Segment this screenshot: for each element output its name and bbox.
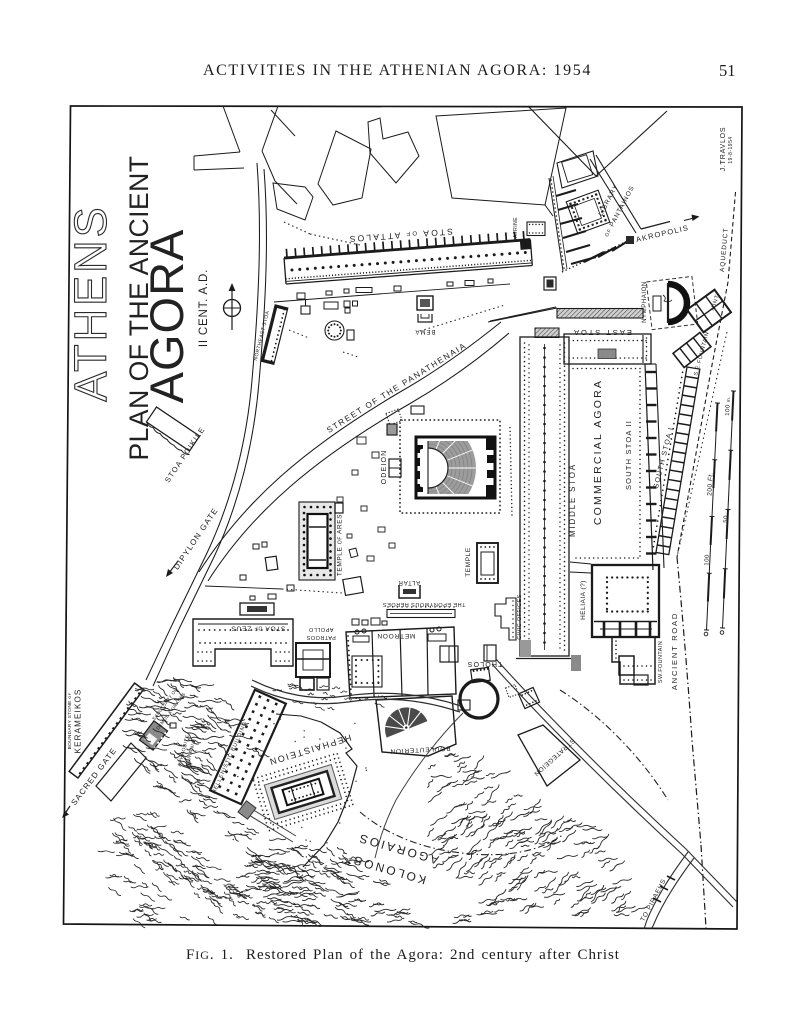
svg-text:APOLLO: APOLLO <box>308 626 333 632</box>
svg-text:II CENT. A.D.: II CENT. A.D. <box>198 269 210 347</box>
svg-text:100: 100 <box>704 554 711 566</box>
svg-text:AGORA: AGORA <box>140 229 193 404</box>
svg-text:AKROPOLIS: AKROPOLIS <box>635 223 690 244</box>
svg-text:EAST STOA: EAST STOA <box>572 328 632 337</box>
svg-text:COMMERCIAL AGORA: COMMERCIAL AGORA <box>592 379 604 525</box>
svg-text:THE EPONYMOUS HEROES: THE EPONYMOUS HEROES <box>382 601 465 607</box>
svg-text:STREET OF THE PANATHENAIA: STREET OF THE PANATHENAIA <box>325 341 468 435</box>
svg-text:DIPYLON GATE: DIPYLON GATE <box>172 506 220 572</box>
svg-text:BOUNDARY STONE OF: BOUNDARY STONE OF <box>67 692 73 749</box>
svg-text:J.TRAVLOS: J.TRAVLOS <box>720 127 727 172</box>
svg-text:STOA POIKILE: STOA POIKILE <box>163 425 207 484</box>
svg-text:KERAMEIKOS: KERAMEIKOS <box>74 689 83 754</box>
svg-text:CIVIC OFFICES: CIVIC OFFICES <box>517 594 523 639</box>
svg-text:TEMPLE OF ARES: TEMPLE OF ARES <box>337 514 344 576</box>
svg-text:ODEION: ODEION <box>381 450 388 485</box>
svg-text:BEMA: BEMA <box>414 328 435 334</box>
svg-text:SW.FOUNTAIN: SW.FOUNTAIN <box>658 641 664 683</box>
svg-text:ALTAR: ALTAR <box>398 579 420 585</box>
svg-text:200 Ft.: 200 Ft. <box>706 472 714 496</box>
svg-text:TO PIRAEUS: TO PIRAEUS <box>639 878 667 923</box>
svg-text:AQUEDUCT: AQUEDUCT <box>719 227 730 272</box>
svg-text:STOA OF ZEUS: STOA OF ZEUS <box>231 625 286 632</box>
svg-text:METROON: METROON <box>377 632 416 639</box>
svg-text:PATROOS: PATROOS <box>306 634 336 640</box>
svg-text:STRATEGEION: STRATEGEION <box>532 737 576 777</box>
svg-text:MIDDLE STOA: MIDDLE STOA <box>568 463 577 537</box>
svg-text:HELIAIA (?): HELIAIA (?) <box>580 580 587 620</box>
svg-text:100 m.: 100 m. <box>725 396 732 416</box>
svg-text:50: 50 <box>723 515 729 523</box>
svg-text:LATRINE: LATRINE <box>513 217 519 241</box>
svg-text:S.E.FOUNTAIN: S.E.FOUNTAIN <box>693 331 711 376</box>
svg-text:TEMPLE: TEMPLE <box>465 547 472 577</box>
svg-text:SOUTH STOA II: SOUTH STOA II <box>624 420 633 490</box>
svg-text:ANCIENT ROAD: ANCIENT ROAD <box>670 612 679 690</box>
svg-text:19-8-1954: 19-8-1954 <box>728 136 734 163</box>
svg-text:BOULEUTERION: BOULEUTERION <box>389 744 450 754</box>
svg-text:ATHENS: ATHENS <box>65 204 116 401</box>
